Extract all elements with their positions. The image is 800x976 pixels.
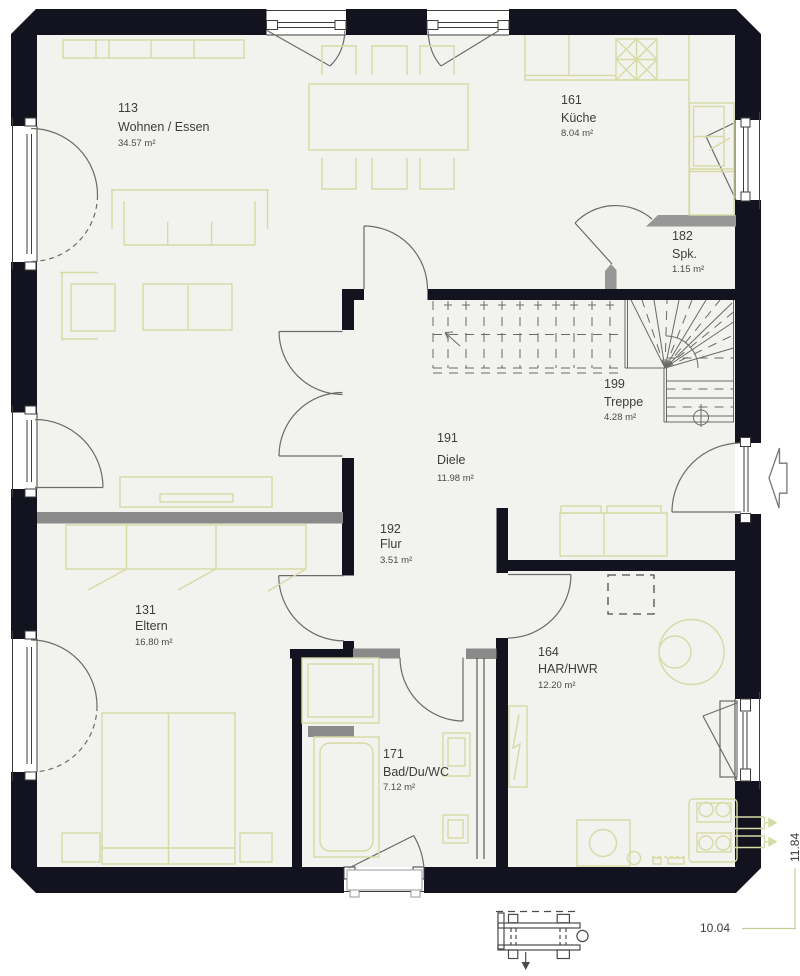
svg-text:Eltern: Eltern (135, 619, 168, 633)
svg-text:8.04 m²: 8.04 m² (561, 128, 593, 139)
svg-text:192: 192 (380, 522, 401, 536)
svg-text:11.84: 11.84 (788, 833, 800, 862)
svg-text:Wohnen / Essen: Wohnen / Essen (118, 120, 210, 134)
svg-text:164: 164 (538, 645, 559, 659)
svg-text:1.15 m²: 1.15 m² (672, 264, 704, 275)
svg-text:12.20 m²: 12.20 m² (538, 680, 576, 691)
svg-text:10.04: 10.04 (700, 921, 730, 935)
svg-text:4.28 m²: 4.28 m² (604, 412, 636, 423)
svg-text:Flur: Flur (380, 537, 402, 551)
svg-text:182: 182 (672, 229, 693, 243)
svg-text:11.98 m²: 11.98 m² (437, 473, 474, 484)
svg-text:HAR/HWR: HAR/HWR (538, 662, 598, 676)
svg-text:Küche: Küche (561, 111, 596, 125)
svg-text:7.12 m²: 7.12 m² (383, 782, 415, 793)
svg-text:34.57 m²: 34.57 m² (118, 138, 156, 149)
svg-text:113: 113 (118, 101, 138, 115)
svg-text:131: 131 (135, 603, 156, 617)
svg-text:199: 199 (604, 377, 625, 391)
svg-text:Treppe: Treppe (604, 395, 643, 409)
svg-text:Spk.: Spk. (672, 247, 697, 261)
svg-text:191: 191 (437, 431, 458, 445)
svg-text:3.51 m²: 3.51 m² (380, 555, 412, 566)
svg-text:16.80 m²: 16.80 m² (135, 637, 173, 648)
svg-text:Diele: Diele (437, 453, 466, 467)
svg-text:171: 171 (383, 747, 404, 761)
svg-text:161: 161 (561, 93, 582, 107)
svg-text:Bad/Du/WC: Bad/Du/WC (383, 765, 449, 779)
